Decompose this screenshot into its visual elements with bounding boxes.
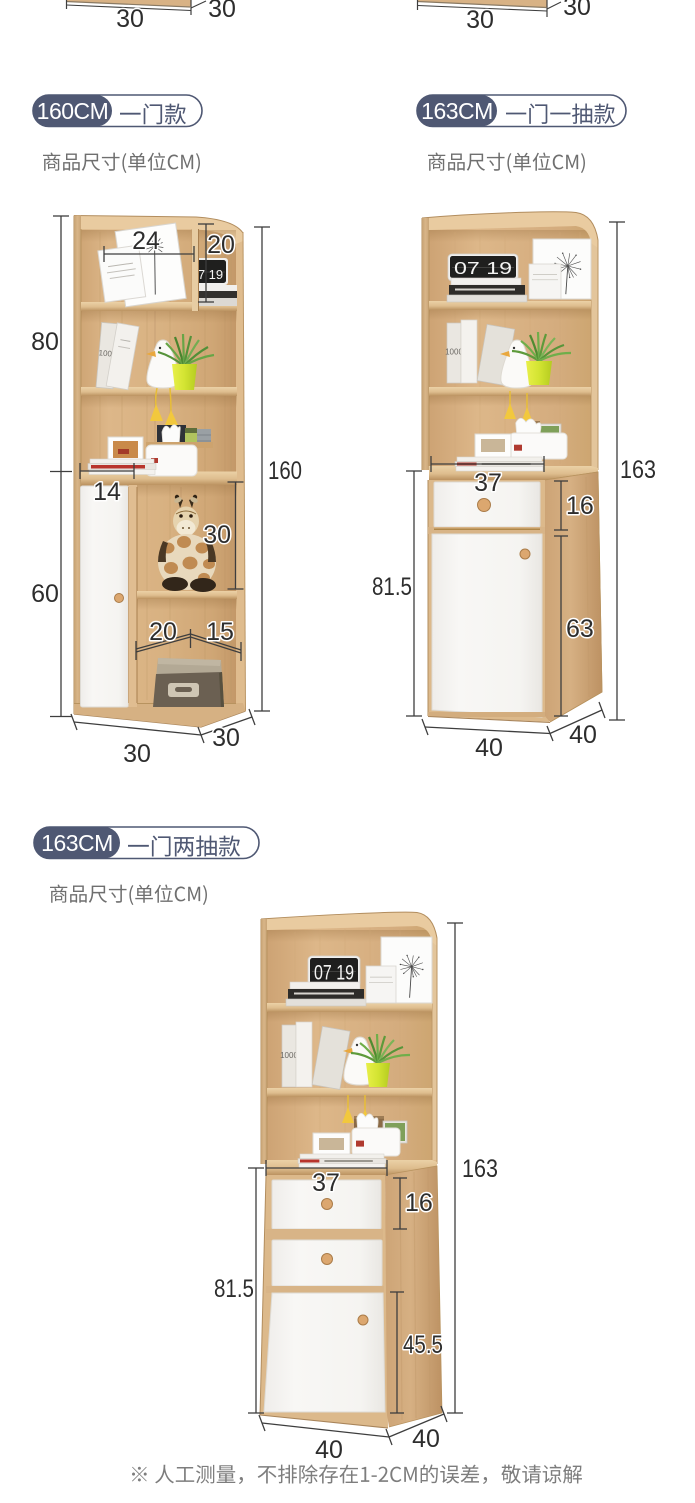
svg-text:14: 14 [93,478,121,506]
svg-text:07 19: 07 19 [314,961,354,984]
svg-text:40: 40 [569,721,597,749]
svg-text:7 19: 7 19 [198,267,223,282]
svg-text:160CM: 160CM [37,98,109,124]
svg-text:40: 40 [412,1425,440,1453]
svg-text:30: 30 [563,0,591,21]
svg-text:30: 30 [208,0,236,23]
svg-text:20: 20 [149,618,177,646]
svg-text:30: 30 [116,5,144,33]
svg-text:45.5: 45.5 [403,1331,443,1359]
svg-text:07 19: 07 19 [454,258,512,278]
svg-text:63: 63 [566,615,594,643]
svg-text:30: 30 [212,724,240,752]
svg-text:81.5: 81.5 [214,1275,254,1303]
svg-text:24: 24 [132,227,160,255]
svg-text:15: 15 [206,618,234,646]
svg-text:30: 30 [203,521,231,549]
svg-text:40: 40 [475,734,503,762]
svg-text:60: 60 [31,580,59,608]
svg-text:16: 16 [405,1189,433,1217]
svg-text:40: 40 [315,1436,343,1464]
svg-text:163: 163 [462,1155,498,1183]
svg-text:37: 37 [312,1169,340,1197]
svg-text:37: 37 [474,469,502,497]
svg-text:80: 80 [31,328,59,356]
svg-text:160: 160 [268,457,302,485]
svg-text:163CM: 163CM [421,98,493,124]
svg-text:163CM: 163CM [41,830,113,856]
svg-text:30: 30 [466,6,494,34]
svg-text:163: 163 [620,456,656,484]
svg-text:20: 20 [207,231,235,259]
svg-text:81.5: 81.5 [372,573,412,601]
svg-text:16: 16 [566,492,594,520]
svg-text:30: 30 [123,740,151,768]
